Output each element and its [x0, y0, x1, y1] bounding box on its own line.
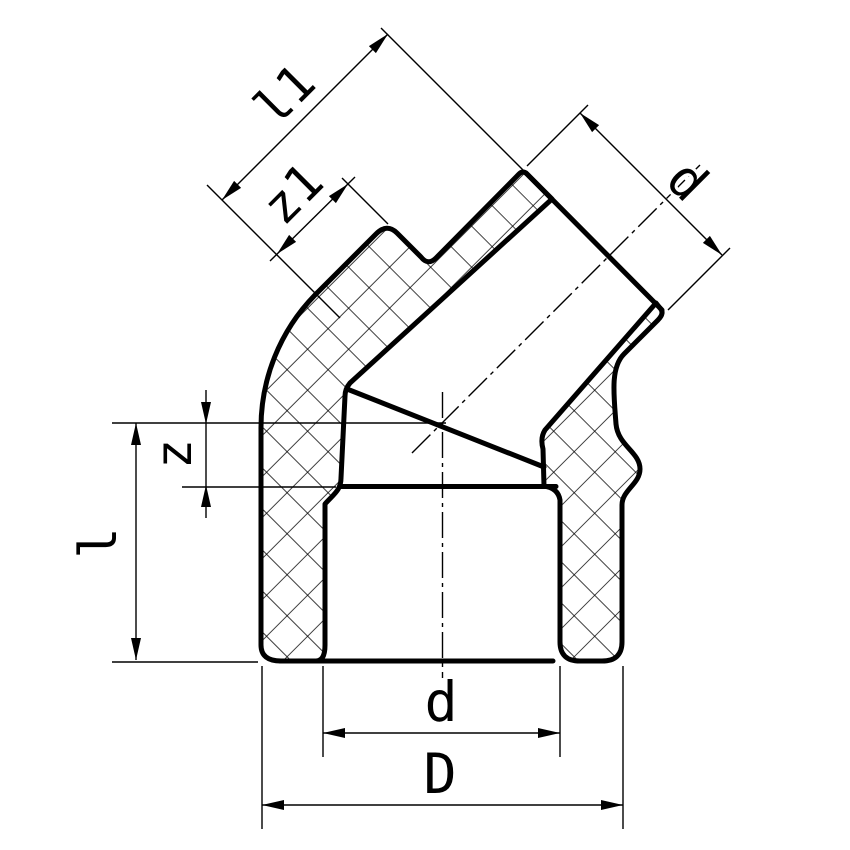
- arrow-D-left: [262, 800, 284, 810]
- ext-branch-d-lower: [668, 248, 730, 310]
- arrow-l-bottom: [131, 638, 141, 660]
- dim-label-d: d: [424, 670, 457, 734]
- dim-label-branch-d: d: [654, 149, 719, 214]
- dim-label-z1: z1: [251, 152, 335, 236]
- branch-end-face-edge: [526, 173, 662, 310]
- dim-label-z: z: [145, 439, 203, 469]
- ext-branch-d-upper: [527, 105, 588, 166]
- dim-label-D: D: [423, 742, 456, 806]
- ext-z1-upper: [342, 178, 388, 224]
- dim-label-l1: l1: [243, 53, 327, 137]
- section-wall-right: [542, 303, 662, 661]
- arrow-l-top: [131, 423, 141, 445]
- section-wall-left: [261, 172, 552, 661]
- arrow-d-left: [323, 728, 345, 738]
- elbow-45-section-drawing: l1 z1 d z l d D: [0, 0, 850, 850]
- arrow-D-right: [601, 800, 623, 810]
- internal-floor-edge: [347, 389, 544, 467]
- drawing-canvas: l1 z1 d z l d D: [0, 0, 850, 850]
- arrow-d-right: [538, 728, 560, 738]
- arrow-z-top: [201, 402, 211, 424]
- dimension-labels: l1 z1 d z l d D: [69, 53, 719, 806]
- dim-label-l: l: [69, 527, 129, 558]
- arrow-z-bottom: [201, 485, 211, 507]
- ext-l1-upper: [381, 28, 526, 173]
- fitting-section-body: [261, 172, 662, 661]
- extension-lines: [112, 28, 730, 829]
